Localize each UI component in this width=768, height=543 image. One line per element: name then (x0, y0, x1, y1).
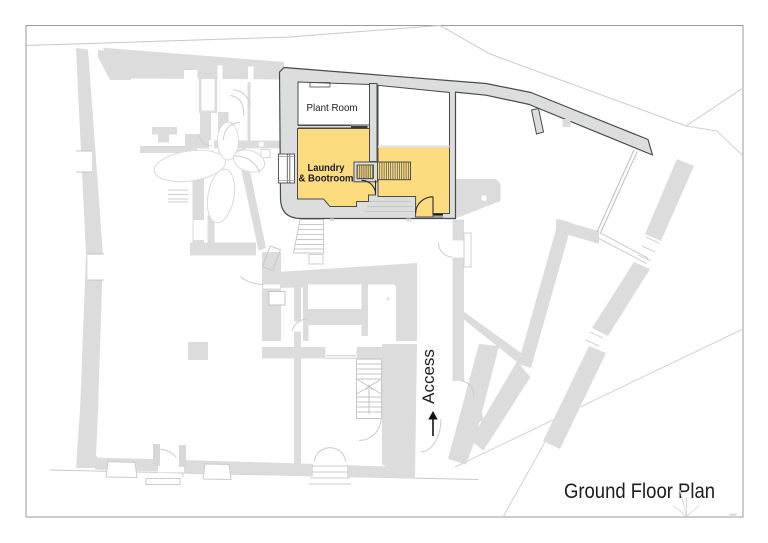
svg-text:Ground Floor Plan: Ground Floor Plan (564, 480, 715, 503)
svg-text:Access: Access (419, 349, 438, 404)
svg-text:Plant Room: Plant Room (307, 102, 358, 114)
svg-text:& Bootroom: & Bootroom (299, 173, 354, 185)
